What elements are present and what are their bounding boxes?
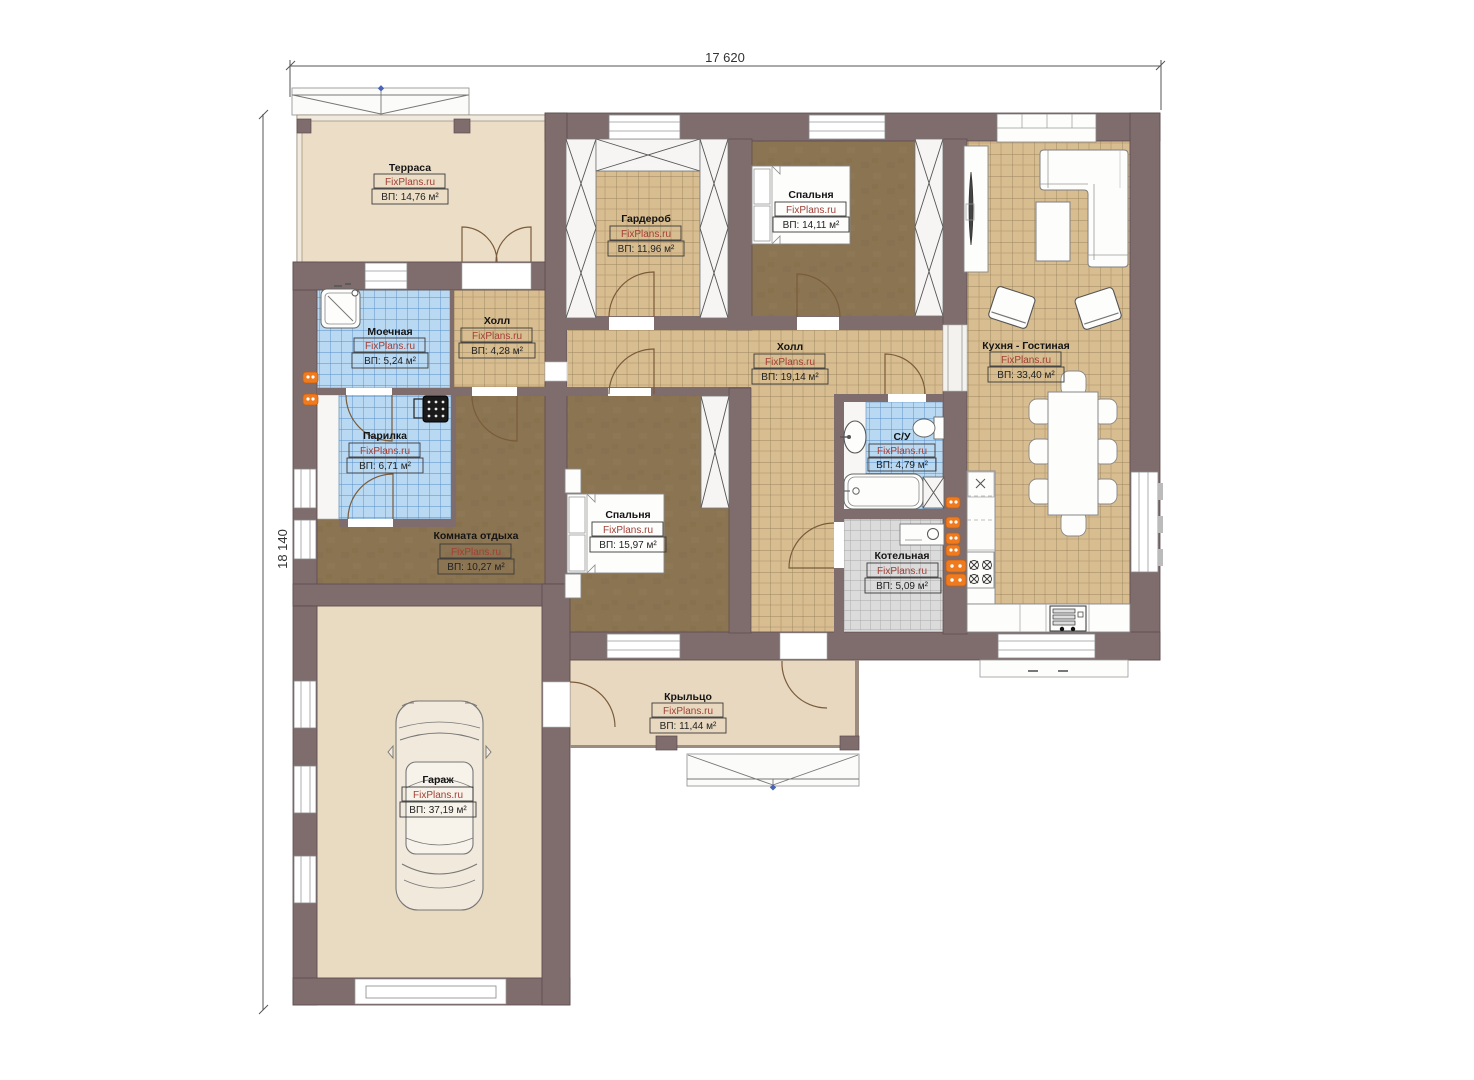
svg-text:ВП: 14,76 м²: ВП: 14,76 м² (381, 192, 439, 203)
svg-text:18 140: 18 140 (275, 529, 290, 569)
svg-text:FixPlans.ru: FixPlans.ru (472, 331, 522, 342)
svg-text:FixPlans.ru: FixPlans.ru (451, 547, 501, 558)
svg-text:Терраса: Терраса (389, 162, 431, 174)
svg-text:FixPlans.ru: FixPlans.ru (1001, 355, 1051, 366)
svg-text:ВП: 37,19 м²: ВП: 37,19 м² (409, 805, 467, 816)
svg-text:С/У: С/У (893, 431, 911, 443)
svg-text:ВП: 5,24 м²: ВП: 5,24 м² (364, 356, 417, 367)
svg-text:Гараж: Гараж (422, 774, 454, 786)
svg-text:ВП: 5,09 м²: ВП: 5,09 м² (876, 581, 929, 592)
svg-text:Крыльцо: Крыльцо (664, 691, 712, 703)
svg-text:ВП: 11,44 м²: ВП: 11,44 м² (660, 721, 717, 732)
svg-text:FixPlans.ru: FixPlans.ru (603, 525, 653, 536)
svg-text:Котельная: Котельная (875, 550, 930, 562)
svg-text:ВП: 10,27 м²: ВП: 10,27 м² (447, 562, 505, 573)
svg-text:Холл: Холл (484, 315, 510, 327)
svg-text:ВП: 11,96 м²: ВП: 11,96 м² (618, 244, 675, 255)
svg-text:ВП: 33,40 м²: ВП: 33,40 м² (997, 370, 1055, 381)
svg-text:ВП: 6,71 м²: ВП: 6,71 м² (359, 461, 412, 472)
svg-text:FixPlans.ru: FixPlans.ru (360, 446, 410, 457)
svg-text:Спальня: Спальня (788, 189, 833, 201)
svg-text:ВП: 19,14 м²: ВП: 19,14 м² (761, 372, 819, 383)
svg-text:Гардероб: Гардероб (621, 213, 671, 225)
svg-text:Спальня: Спальня (605, 509, 650, 521)
svg-text:ВП: 4,28 м²: ВП: 4,28 м² (471, 346, 524, 357)
svg-text:ВП: 14,11 м²: ВП: 14,11 м² (783, 220, 840, 231)
svg-text:ВП: 4,79 м²: ВП: 4,79 м² (876, 460, 929, 471)
svg-text:FixPlans.ru: FixPlans.ru (877, 446, 927, 457)
svg-text:Холл: Холл (777, 341, 803, 353)
svg-text:17 620: 17 620 (705, 50, 745, 65)
svg-text:FixPlans.ru: FixPlans.ru (786, 205, 836, 216)
svg-text:Моечная: Моечная (367, 326, 412, 338)
svg-text:FixPlans.ru: FixPlans.ru (413, 790, 463, 801)
svg-text:FixPlans.ru: FixPlans.ru (877, 566, 927, 577)
svg-text:Парилка: Парилка (363, 430, 407, 442)
svg-text:FixPlans.ru: FixPlans.ru (663, 706, 713, 717)
svg-text:FixPlans.ru: FixPlans.ru (385, 177, 435, 188)
svg-text:Кухня - Гостиная: Кухня - Гостиная (982, 340, 1069, 352)
svg-text:FixPlans.ru: FixPlans.ru (365, 341, 415, 352)
svg-text:Комната отдыха: Комната отдыха (434, 530, 519, 542)
svg-text:FixPlans.ru: FixPlans.ru (621, 229, 671, 240)
svg-text:FixPlans.ru: FixPlans.ru (765, 357, 815, 368)
svg-text:ВП: 15,97 м²: ВП: 15,97 м² (599, 540, 657, 551)
